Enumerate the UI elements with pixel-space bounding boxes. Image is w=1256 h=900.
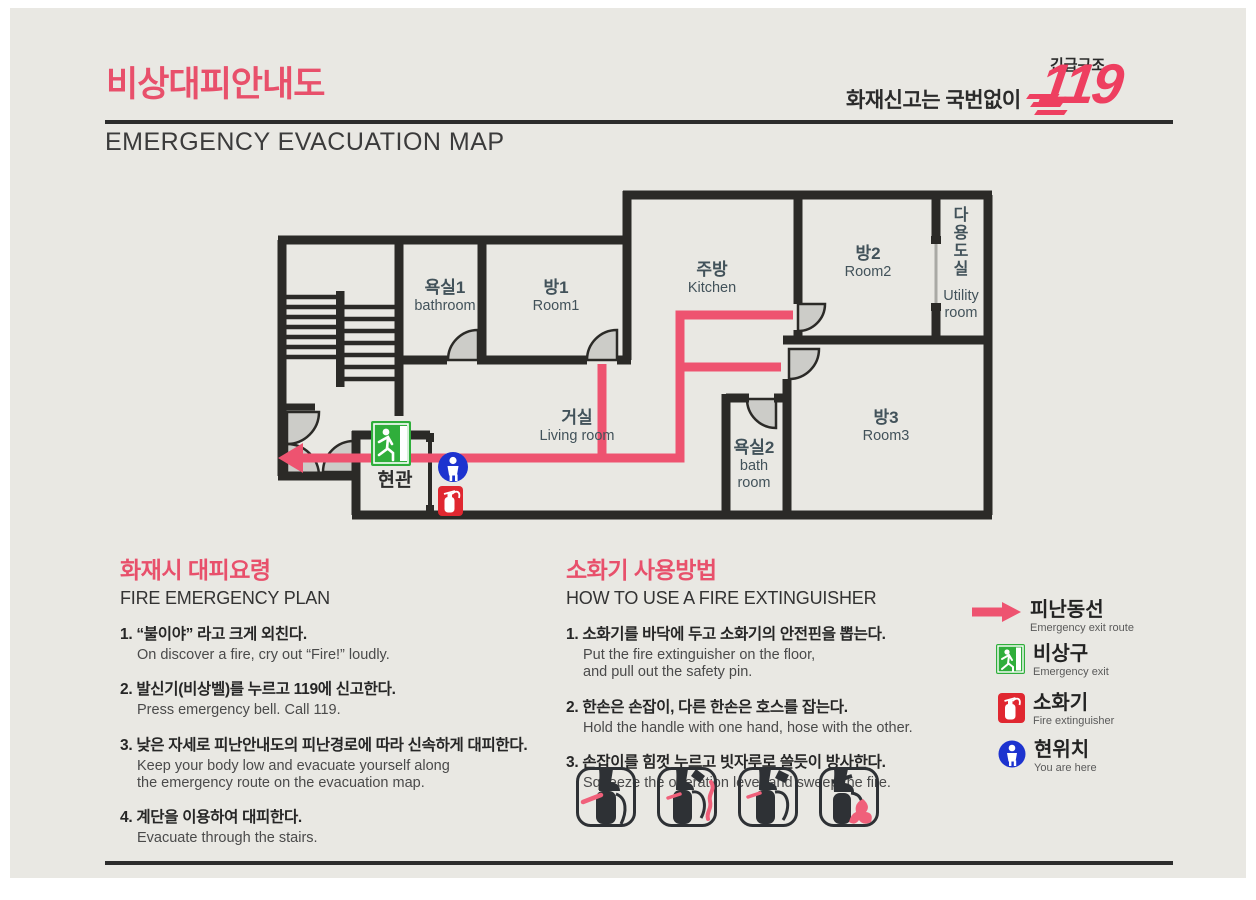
legend-extinguisher-ko: 소화기 (1033, 693, 1114, 713)
evacuation-poster: { "header": { "title_ko": "비상대피안내도", "ti… (0, 0, 1256, 900)
bathroom2-door-leaf (747, 399, 776, 428)
legend-exit-ko: 비상구 (1033, 644, 1109, 664)
logo-stripe (1030, 102, 1063, 107)
label-bathroom1: 욕실1 bathroom (414, 278, 475, 315)
header-divider (105, 120, 1173, 124)
room1-door-leaf (587, 330, 617, 360)
extinguisher-step-2-illustration (656, 766, 718, 828)
extinguisher-step-4-illustration (818, 766, 880, 828)
label-room2: 방2 Room2 (845, 244, 892, 281)
legend-here-ko: 현위치 (1034, 740, 1097, 760)
emergency-exit-icon (996, 644, 1025, 674)
room3-door-leaf (789, 349, 819, 379)
label-living-room: 거실 Living room (540, 408, 615, 445)
label-utility-ko: 다용도실 (946, 206, 970, 278)
fire-extinguisher-icon (438, 486, 463, 516)
fire-call-text: 화재신고는 국번없이 (846, 84, 1021, 114)
extinguisher-item: 2. 한손은 손잡이, 다른 한손은 호스를 잡는다. Hold the han… (566, 695, 1011, 737)
legend-route-ko: 피난동선 (1030, 600, 1134, 620)
emergency-exit-sign-icon (371, 421, 411, 466)
legend-exit: 비상구 Emergency exit (996, 644, 1109, 678)
route-arrow-icon (972, 600, 1022, 624)
logo-stripe (1034, 110, 1067, 115)
extinguisher-guide-section: 소화기 사용방법 HOW TO USE A FIRE EXTINGUISHER … (566, 558, 1011, 792)
fire-plan-item: 2. 발신기(비상벨)를 누르고 119에 신고한다. Press emerge… (120, 677, 565, 719)
staircase (286, 291, 395, 387)
legend-here: 현위치 You are here (998, 740, 1097, 774)
extinguisher-step-3-illustration (737, 766, 799, 828)
fire-plan-heading-ko: 화재시 대피요령 (120, 558, 565, 583)
label-utility-en: Utility room (943, 288, 978, 322)
extinguisher-step-1-illustration (575, 766, 637, 828)
extinguisher-item: 1. 소화기를 바닥에 두고 소화기의 안전핀을 뽑는다. Put the fi… (566, 622, 1011, 681)
fire-plan-item: 3. 낮은 자세로 피난안내도의 피난경로에 따라 신속하게 대피한다. Kee… (120, 733, 565, 792)
bathroom1-door-leaf (448, 330, 478, 360)
extinguisher-heading-en: HOW TO USE A FIRE EXTINGUISHER (566, 588, 1011, 609)
page-title-english: EMERGENCY EVACUATION MAP (105, 128, 505, 157)
fire-plan-heading-en: FIRE EMERGENCY PLAN (120, 588, 565, 609)
poster-background: 비상대피안내도 화재신고는 국번없이 긴급구조 119 EMERGENCY EV… (10, 8, 1246, 878)
label-kitchen: 주방 Kitchen (688, 260, 736, 297)
legend-here-en: You are here (1034, 762, 1097, 774)
label-entrance: 현관 (378, 465, 413, 492)
you-are-here-icon (998, 740, 1026, 768)
fire-plan-item: 4. 계단을 이용하여 대피한다. Evacuate through the s… (120, 805, 565, 847)
emergency-119-logo: 긴급구조 119 (1040, 54, 1220, 128)
fire-plan-section: 화재시 대피요령 FIRE EMERGENCY PLAN 1. “불이야” 라고… (120, 558, 565, 847)
extinguisher-heading-ko: 소화기 사용방법 (566, 558, 1011, 583)
label-room1: 방1 Room1 (533, 278, 580, 315)
extinguisher-steps-illustrations (575, 766, 880, 828)
stair-door-leaf (287, 412, 319, 444)
legend-route-en: Emergency exit route (1030, 622, 1134, 634)
legend-extinguisher: 소화기 Fire extinguisher (998, 693, 1114, 727)
footer-divider (105, 861, 1173, 865)
legend-route: 피난동선 Emergency exit route (972, 600, 1134, 634)
legend-extinguisher-en: Fire extinguisher (1033, 715, 1114, 727)
page-title-korean: 비상대피안내도 (106, 56, 324, 107)
room2-door-leaf (798, 304, 825, 331)
label-bathroom2: 욕실2 bath room (734, 438, 775, 492)
fire-extinguisher-icon (998, 693, 1025, 723)
fire-plan-item: 1. “불이야” 라고 크게 외친다. On discover a fire, … (120, 622, 565, 664)
logo-stripe (1026, 94, 1059, 99)
label-room3: 방3 Room3 (863, 408, 910, 445)
legend-exit-en: Emergency exit (1033, 666, 1109, 678)
you-are-here-icon (438, 452, 468, 482)
